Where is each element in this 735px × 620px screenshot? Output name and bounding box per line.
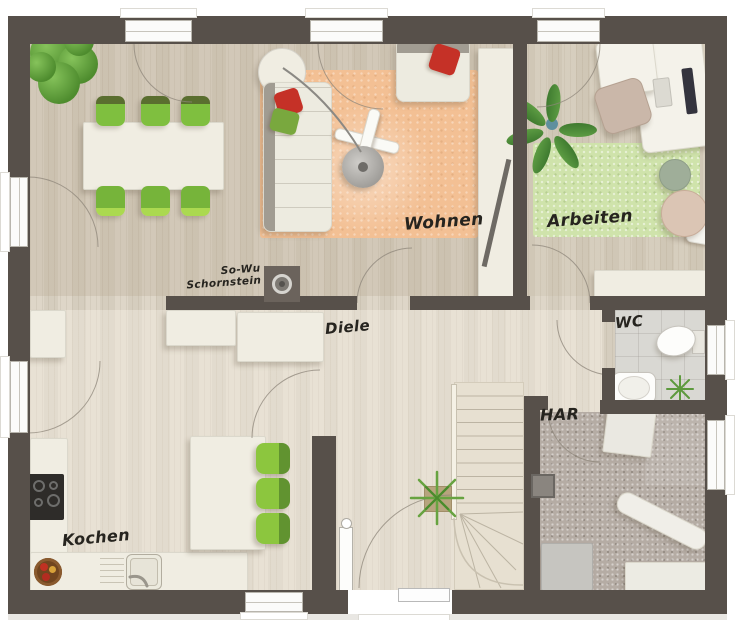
bar-stool [256, 443, 290, 474]
exterior-wall-right [705, 16, 727, 614]
wall-office-wc [590, 296, 705, 310]
window-office-top [537, 20, 600, 42]
pouf [661, 190, 708, 237]
window-utility [707, 420, 725, 490]
window-dining-top [125, 20, 192, 42]
meter-box [531, 474, 555, 498]
window-sill [0, 172, 10, 252]
window-sill [725, 320, 735, 380]
wall-wc-left-lower [602, 368, 615, 402]
window-sill [305, 8, 388, 18]
dryer [541, 543, 593, 591]
kitchen-tall-cabinet [30, 310, 66, 358]
exterior-wall-left [8, 16, 30, 614]
entrance-door-leaf [398, 588, 450, 602]
fruit [42, 573, 50, 581]
office-plant-leaf [559, 123, 597, 137]
dining-chair [96, 96, 125, 126]
office-plant-leaf [550, 133, 583, 172]
cooktop-burner [49, 481, 58, 490]
wall-living-office [513, 44, 527, 296]
cooktop-burner [34, 498, 43, 507]
kitchen-counter-upper [166, 310, 236, 346]
hall-sideboard [237, 312, 324, 362]
wall-hall-living [166, 296, 357, 310]
wall-kitchen-right [312, 436, 336, 590]
room-label-utility: HAR [540, 404, 580, 424]
door-kitchen-side [10, 361, 28, 433]
dining-chair [181, 96, 210, 126]
dining-chair [141, 186, 170, 216]
wall-hall-living-right [410, 296, 530, 310]
window-living-top [310, 20, 383, 42]
dining-table [83, 122, 224, 190]
fruit [40, 563, 48, 571]
arc-lamp-bulb [358, 162, 368, 172]
window-wc [707, 325, 725, 375]
radiator-valve [341, 518, 352, 529]
floor-plan: Wohnen Arbeiten Diele WC HAR Kochen So-W… [0, 0, 735, 620]
kitchen-sink-basin [130, 558, 158, 586]
window-sill [0, 356, 10, 438]
window-dining-left [10, 177, 28, 247]
stair-planter [424, 486, 452, 512]
chimney-vent-core [279, 281, 285, 287]
dining-chair [96, 186, 125, 216]
wall-wc-utility [600, 400, 705, 414]
window-sill [240, 612, 308, 620]
window-sill [120, 8, 197, 18]
washbasin-bowl [618, 376, 650, 400]
dining-chair [181, 186, 210, 216]
dining-plant-leaf [26, 52, 56, 82]
kitchen-island [190, 436, 266, 550]
dining-chair [141, 96, 170, 126]
fruit-bowl [34, 558, 62, 586]
small-round-table [659, 159, 691, 191]
entrance-step [358, 614, 450, 620]
window-sill [725, 415, 735, 495]
window-kitchen-bottom [245, 592, 303, 612]
keyboard [652, 77, 672, 108]
sink-drainboard [100, 558, 124, 586]
fruit [49, 566, 56, 573]
stair-treads [455, 383, 523, 516]
utility-shelf [625, 562, 707, 592]
cooktop-burner [33, 480, 45, 492]
room-label-wc: WC [614, 312, 644, 332]
bar-stool [256, 478, 290, 509]
bar-stool [256, 513, 290, 544]
window-sill [532, 8, 605, 18]
cooktop-burner [47, 494, 60, 507]
wall-wc-left-upper [602, 310, 615, 322]
